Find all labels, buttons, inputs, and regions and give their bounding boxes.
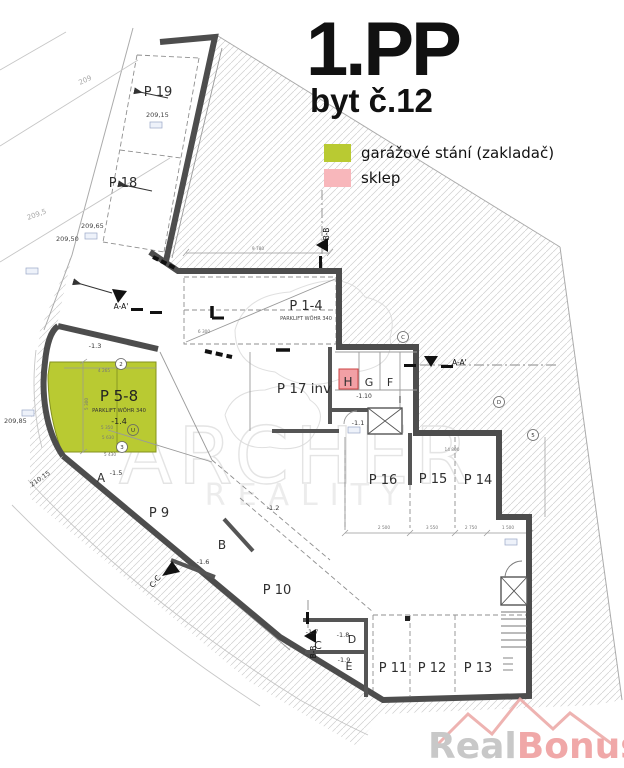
ref-label: U <box>131 428 135 434</box>
stall-label-p9: P 9 <box>149 506 169 521</box>
highlight-system-label: PARKLIFT WÖHR 340 <box>92 407 146 414</box>
sklep-swatch <box>324 169 351 187</box>
legend-row-garage: garážové stání (zakladač) <box>324 144 554 162</box>
svg-text:RealBonus.cz: RealBonus.cz <box>428 726 624 767</box>
cell-label-f: F <box>387 376 393 389</box>
dim-label: 5 350 <box>101 425 114 431</box>
stall-label-p15: P 15 <box>419 472 448 487</box>
elevation-label: -1.10 <box>356 393 372 400</box>
ref-label: C <box>401 335 405 341</box>
floorplan-page: ARCHER REALITY <box>0 0 624 768</box>
highlight-stall-label: P 5-8 <box>100 387 138 405</box>
dim-label: 3 550 <box>426 525 439 531</box>
stall-label-p13: P 13 <box>464 661 493 676</box>
dim-label: 5 630 <box>102 435 115 441</box>
section-label-bb2: B-B <box>309 646 318 659</box>
elevation-label: -1.2 <box>267 504 280 512</box>
elevation-label: -1.5 <box>110 469 123 477</box>
stall-label-p14: P 14 <box>464 473 493 488</box>
dim-label: 5 430 <box>104 452 117 458</box>
ref-label: 2 <box>119 362 123 368</box>
cell-label-g: G <box>365 376 374 389</box>
stall-label-p10: P 10 <box>263 583 292 598</box>
elevation-label: -1.6 <box>197 558 210 566</box>
stall-system-label: PARKLIFT WÖHR 340 <box>280 315 332 322</box>
terrain-label: 209,15 <box>146 111 169 119</box>
ref-label: 3 <box>120 445 124 451</box>
stall-label-p12: P 12 <box>418 661 447 676</box>
legend-row-sklep: sklep <box>324 169 554 187</box>
ref-label: 5 <box>531 433 535 439</box>
cell-label-i: I <box>399 395 402 406</box>
section-label-aa2: A-A' <box>452 358 467 367</box>
garage-swatch <box>324 144 351 162</box>
terrain-label: 209,50 <box>56 235 79 243</box>
elevation-label: -1.8 <box>337 631 350 639</box>
stall-label-p18: P 18 <box>109 176 138 191</box>
elevation-label: -1.7 <box>306 628 319 636</box>
dim-label: 9 780 <box>252 246 265 252</box>
cell-label-b: B <box>218 538 226 552</box>
elevation-label: -1.1 <box>352 419 365 427</box>
floor-title: 1.PP <box>306 14 459 86</box>
legend: garážové stání (zakladač) sklep <box>324 144 554 194</box>
terrain-label: 209,5 <box>26 208 48 222</box>
logo-text-real: Real <box>428 726 517 767</box>
terrain-label: 209,85 <box>4 417 27 425</box>
dim-label: 6 300 <box>198 329 211 335</box>
title-block: 1.PP byt č.12 <box>306 14 459 120</box>
cell-label-a: A <box>97 471 106 485</box>
legend-label-sklep: sklep <box>361 169 400 187</box>
agency-watermark: ARCHER REALITY <box>119 412 475 513</box>
terrain-label: 209,65 <box>81 222 104 230</box>
legend-label-garage: garážové stání (zakladač) <box>361 144 554 162</box>
dim-label: 14 800 <box>444 447 459 453</box>
dim-label: 2 500 <box>378 525 391 531</box>
stall-label-p1-4: P 1-4 <box>289 299 322 314</box>
logo-text-bonus: Bonus <box>517 726 624 767</box>
elevation-label: -1.9 <box>338 656 351 664</box>
stall-label-p11: P 11 <box>379 661 408 676</box>
cell-label-h: H <box>343 375 352 389</box>
elevation-label: -1.3 <box>89 342 102 350</box>
dim-label: 2 750 <box>465 525 478 531</box>
column-marker <box>405 616 410 621</box>
section-label-aa: A-A' <box>114 302 129 311</box>
dim-label: 5 300 <box>84 398 90 411</box>
stall-label-p16: P 16 <box>369 473 398 488</box>
ref-label: D <box>497 400 501 406</box>
stall-label-p17inv: P 17 inv <box>277 381 331 397</box>
highlight-level-label: -1.4 <box>111 417 127 426</box>
dim-label: 4 265 <box>98 368 111 374</box>
section-label-bb: B-B <box>322 228 331 241</box>
dim-label: 1 500 <box>502 525 515 531</box>
stall-label-p19: P 19 <box>144 85 173 100</box>
terrain-label: 209 <box>77 74 93 87</box>
